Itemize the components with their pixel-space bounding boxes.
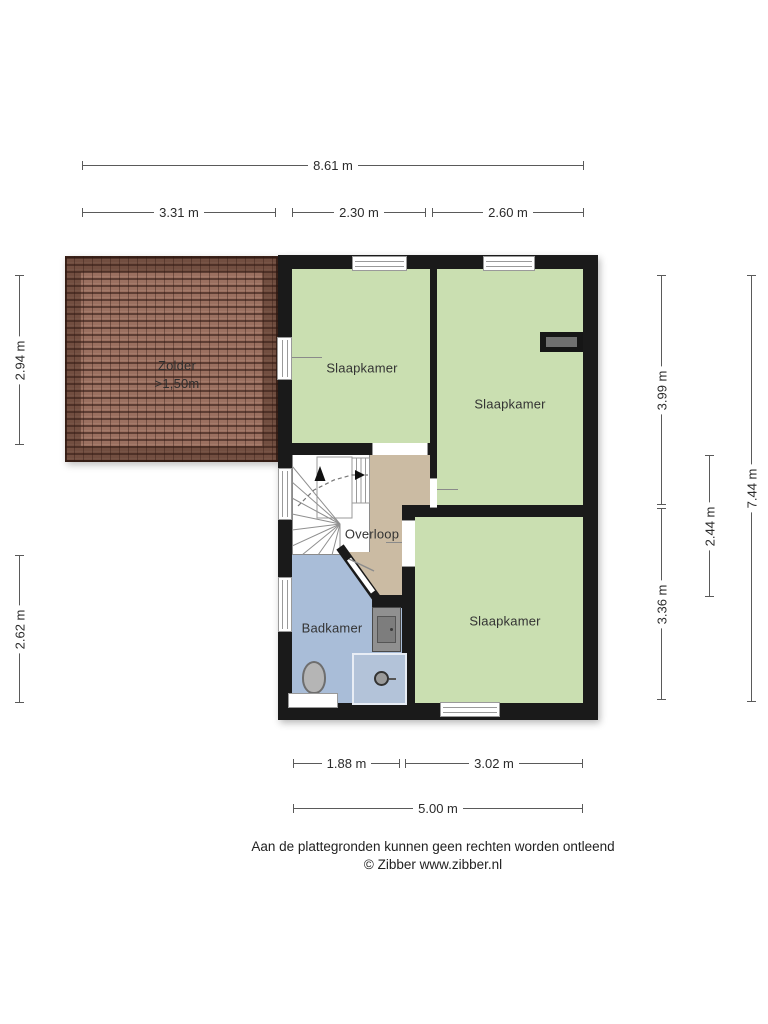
dimension-bottom-segment-1: 1.88 m xyxy=(293,757,400,770)
dimension-right-total: 7.44 m xyxy=(745,275,758,702)
dimension-left-segment-2: 2.62 m xyxy=(13,555,26,703)
window-bottom-bedroom3 xyxy=(440,702,500,717)
dimension-top-segment-3: 2.60 m xyxy=(432,206,584,219)
floorplan-page: 8.61 m 3.31 m 2.30 m 2.60 m 2.94 m 2.62 … xyxy=(0,0,768,1024)
bath-tray xyxy=(288,693,338,708)
shower-head-icon xyxy=(374,671,389,686)
door-bedroom1 xyxy=(372,443,428,455)
footer-disclaimer: Aan de plattegronden kunnen geen rechten… xyxy=(133,838,733,856)
window-top-bedroom1 xyxy=(352,256,407,271)
zolder-label-text: Zolder xyxy=(155,357,200,375)
dimension-right-middle: 2.44 m xyxy=(703,455,716,597)
dimension-top-segment-2: 2.30 m xyxy=(292,206,426,219)
door-bedroom3 xyxy=(402,520,415,567)
dimension-label: 3.36 m xyxy=(654,580,669,628)
dimension-label: 8.61 m xyxy=(308,158,358,173)
dimension-right-segment-1: 3.99 m xyxy=(655,275,668,505)
washbasin-tap-icon xyxy=(390,628,393,631)
dimension-label: 3.02 m xyxy=(469,756,519,771)
chimney-flue-inner xyxy=(546,337,577,347)
dimension-right-segment-2: 3.36 m xyxy=(655,508,668,700)
dimension-top-total: 8.61 m xyxy=(82,159,584,172)
dimension-label: 2.94 m xyxy=(12,336,27,384)
window-zolder-bedroom1 xyxy=(277,337,292,380)
dimension-label: 3.99 m xyxy=(654,366,669,414)
room-label-badkamer: Badkamer xyxy=(302,621,363,636)
dimension-label: 5.00 m xyxy=(413,801,463,816)
wall-between-bedrooms-top xyxy=(430,269,437,455)
room-label-overloop: Overloop xyxy=(345,527,399,542)
dimension-bottom-segment-2: 3.02 m xyxy=(405,757,583,770)
room-label-slaapkamer-top-left: Slaapkamer xyxy=(326,361,397,376)
swing-line-bedroom3-door xyxy=(386,542,402,543)
wall-bedroom1-bottom-left xyxy=(278,443,372,455)
sill-line-zolder-window xyxy=(292,357,322,358)
dimension-left-segment-1: 2.94 m xyxy=(13,275,26,445)
dimension-bottom-total: 5.00 m xyxy=(293,802,583,815)
room-label-slaapkamer-bottom-right: Slaapkamer xyxy=(469,614,540,629)
toilet xyxy=(302,661,326,694)
room-slaapkamer-top-left xyxy=(292,269,430,443)
dimension-label: 1.88 m xyxy=(322,756,372,771)
footer-credit: © Zibber www.zibber.nl xyxy=(133,856,733,874)
zolder-height-note: >1,50m xyxy=(155,375,200,393)
window-left-stairs xyxy=(278,468,292,520)
room-label-slaapkamer-right: Slaapkamer xyxy=(474,397,545,412)
wall-bedroom1-bottom-right xyxy=(428,443,437,455)
dimension-label: 2.62 m xyxy=(12,605,27,653)
shower-handle-icon xyxy=(389,678,396,680)
dimension-label: 7.44 m xyxy=(744,465,759,513)
footer: Aan de plattegronden kunnen geen rechten… xyxy=(133,838,733,874)
swing-line-bedroom2-door xyxy=(437,489,458,490)
dimension-label: 3.31 m xyxy=(154,205,204,220)
washbasin-bowl xyxy=(377,616,396,643)
dimension-label: 2.30 m xyxy=(334,205,384,220)
room-slaapkamer-right xyxy=(437,269,583,505)
dimension-label: 2.60 m xyxy=(483,205,533,220)
dimension-top-segment-1: 3.31 m xyxy=(82,206,276,219)
window-top-bedroom2 xyxy=(483,256,535,271)
door-bedroom2 xyxy=(430,478,437,508)
dimension-label: 2.44 m xyxy=(702,502,717,550)
window-left-badkamer xyxy=(278,577,292,632)
room-slaapkamer-bottom-right xyxy=(415,517,583,703)
room-label-zolder: Zolder >1,50m xyxy=(155,357,200,393)
